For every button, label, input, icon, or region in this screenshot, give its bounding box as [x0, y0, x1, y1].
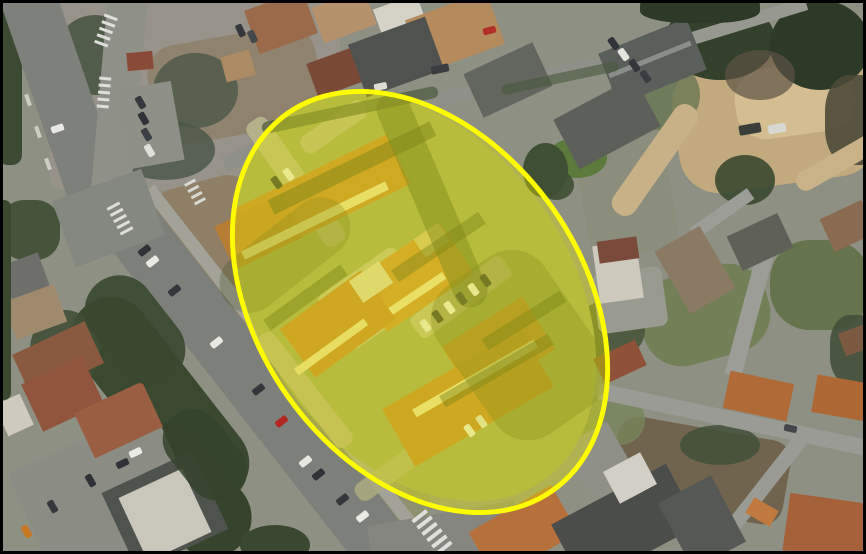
tree-canopy — [240, 525, 310, 554]
house-orange-corner — [782, 493, 866, 554]
crosswalk-stripe — [99, 26, 113, 34]
tree-canopy-bare — [725, 50, 795, 100]
house-orange-southeast-2 — [811, 374, 866, 421]
tree-strip-left-edge — [0, 200, 11, 400]
crosswalk-stripe — [97, 104, 109, 108]
crosswalk-stripe — [97, 97, 109, 101]
crosswalk-stripe — [99, 83, 111, 87]
lane-dash — [34, 126, 42, 139]
lane-dash — [24, 94, 32, 107]
crosswalk-stripe — [101, 20, 115, 28]
car — [606, 36, 619, 51]
satellite-map — [0, 0, 866, 554]
park-kiosk-roof — [126, 51, 153, 71]
crosswalk-stripe — [97, 33, 111, 41]
crosswalk-stripe — [98, 90, 110, 94]
crosswalk-stripe — [99, 76, 111, 80]
tree-canopy — [640, 0, 760, 23]
